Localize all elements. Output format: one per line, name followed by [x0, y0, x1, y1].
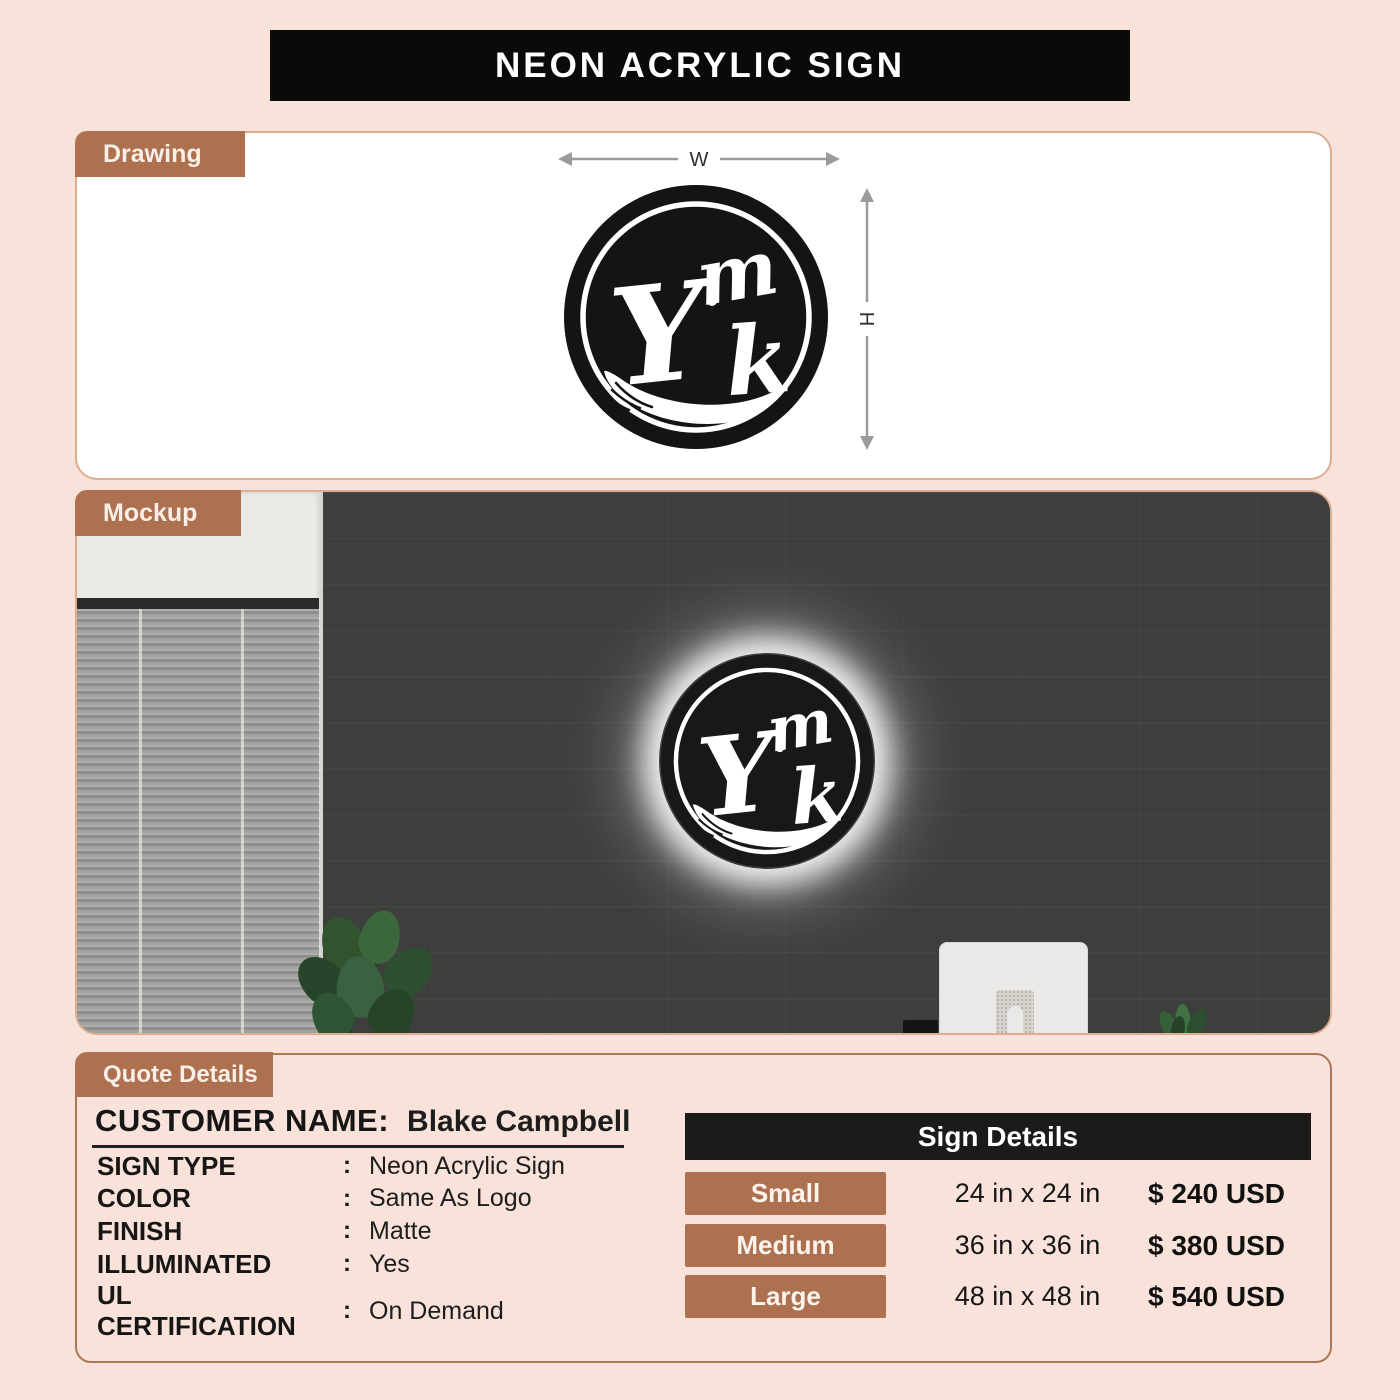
field-value: On Demand [359, 1297, 565, 1326]
height-label: H [855, 312, 877, 326]
quote-field-ul-certification: UL CERTIFICATION : On Demand [97, 1280, 565, 1313]
size-medium-dimensions: 36 in x 36 in [905, 1224, 1150, 1267]
size-large-button[interactable]: Large [685, 1275, 886, 1318]
width-label: W [690, 149, 709, 171]
field-label: SIGN TYPE [97, 1151, 335, 1182]
width-dimension-arrow: W [556, 147, 842, 171]
field-label: UL CERTIFICATION [97, 1280, 335, 1342]
field-value: Same As Logo [359, 1184, 565, 1213]
sign-details-row-medium: Medium 36 in x 36 in $ 380 USD [685, 1224, 1311, 1267]
size-medium-price: $ 380 USD [1148, 1224, 1318, 1267]
field-label: FINISH [97, 1216, 335, 1247]
mockup-panel: m Y k [75, 490, 1332, 1035]
field-separator: : [335, 1217, 359, 1245]
quote-details-section-tab: Quote Details [75, 1052, 273, 1097]
field-value: Matte [359, 1217, 565, 1246]
arrow-left-head-icon [558, 152, 572, 166]
field-value: Neon Acrylic Sign [359, 1152, 565, 1181]
size-medium-button[interactable]: Medium [685, 1224, 886, 1267]
quote-field-illuminated: ILLUMINATED : Yes [97, 1248, 565, 1281]
monitor-stand [996, 990, 1034, 1035]
quote-field-color: COLOR : Same As Logo [97, 1183, 565, 1216]
size-small-dimensions: 24 in x 24 in [905, 1172, 1150, 1215]
logo-monogram-icon: m Y k [562, 183, 830, 451]
page-title-bar: NEON ACRYLIC SIGN [270, 30, 1130, 101]
mockup-tab-label: Mockup [103, 499, 197, 528]
logo-drawing: m Y k [562, 183, 830, 451]
quote-fields-list: SIGN TYPE : Neon Acrylic Sign COLOR : Sa… [97, 1150, 565, 1313]
field-separator: : [335, 1185, 359, 1213]
mockup-window-rail [77, 598, 319, 609]
field-separator: : [335, 1250, 359, 1278]
sign-details-title: Sign Details [918, 1121, 1078, 1153]
customer-name-value: Blake Campbell [407, 1105, 630, 1139]
mockup-illuminated-sign: m Y k [659, 653, 875, 869]
blind-cord [139, 609, 142, 1035]
customer-name-label: CUSTOMER NAME: [95, 1103, 389, 1139]
quote-field-finish: FINISH : Matte [97, 1215, 565, 1248]
mockup-window-blinds [77, 609, 319, 1035]
arrow-right-head-icon [826, 152, 840, 166]
quote-field-sign-type: SIGN TYPE : Neon Acrylic Sign [97, 1150, 565, 1183]
field-label: ILLUMINATED [97, 1249, 335, 1280]
field-separator: : [335, 1297, 359, 1325]
blind-cord [241, 609, 244, 1035]
size-small-price: $ 240 USD [1148, 1172, 1318, 1215]
sign-details-row-small: Small 24 in x 24 in $ 240 USD [685, 1172, 1311, 1215]
size-large-price: $ 540 USD [1148, 1275, 1318, 1318]
sign-details-header: Sign Details [685, 1113, 1311, 1160]
customer-name-row: CUSTOMER NAME: Blake Campbell [95, 1103, 630, 1139]
height-dimension-arrow: H [853, 186, 881, 452]
field-separator: : [335, 1152, 359, 1180]
drawing-tab-label: Drawing [103, 140, 202, 169]
quote-sheet-page: NEON ACRYLIC SIGN Drawing W H m Y k [0, 0, 1400, 1400]
customer-name-underline [92, 1145, 624, 1148]
monitor-stand-arch [1007, 1006, 1023, 1035]
logo-monogram-icon: m Y k [659, 653, 875, 869]
field-value: Yes [359, 1250, 565, 1279]
drawing-section-tab: Drawing [75, 131, 245, 177]
page-title: NEON ACRYLIC SIGN [495, 46, 905, 86]
arrow-down-head-icon [860, 436, 874, 450]
size-small-button[interactable]: Small [685, 1172, 886, 1215]
desk-object [903, 1020, 938, 1035]
quote-tab-label: Quote Details [103, 1061, 258, 1089]
field-label: COLOR [97, 1183, 335, 1214]
mockup-section-tab: Mockup [75, 490, 241, 536]
arrow-up-head-icon [860, 188, 874, 202]
size-large-dimensions: 48 in x 48 in [905, 1275, 1150, 1318]
sign-details-row-large: Large 48 in x 48 in $ 540 USD [685, 1275, 1311, 1318]
